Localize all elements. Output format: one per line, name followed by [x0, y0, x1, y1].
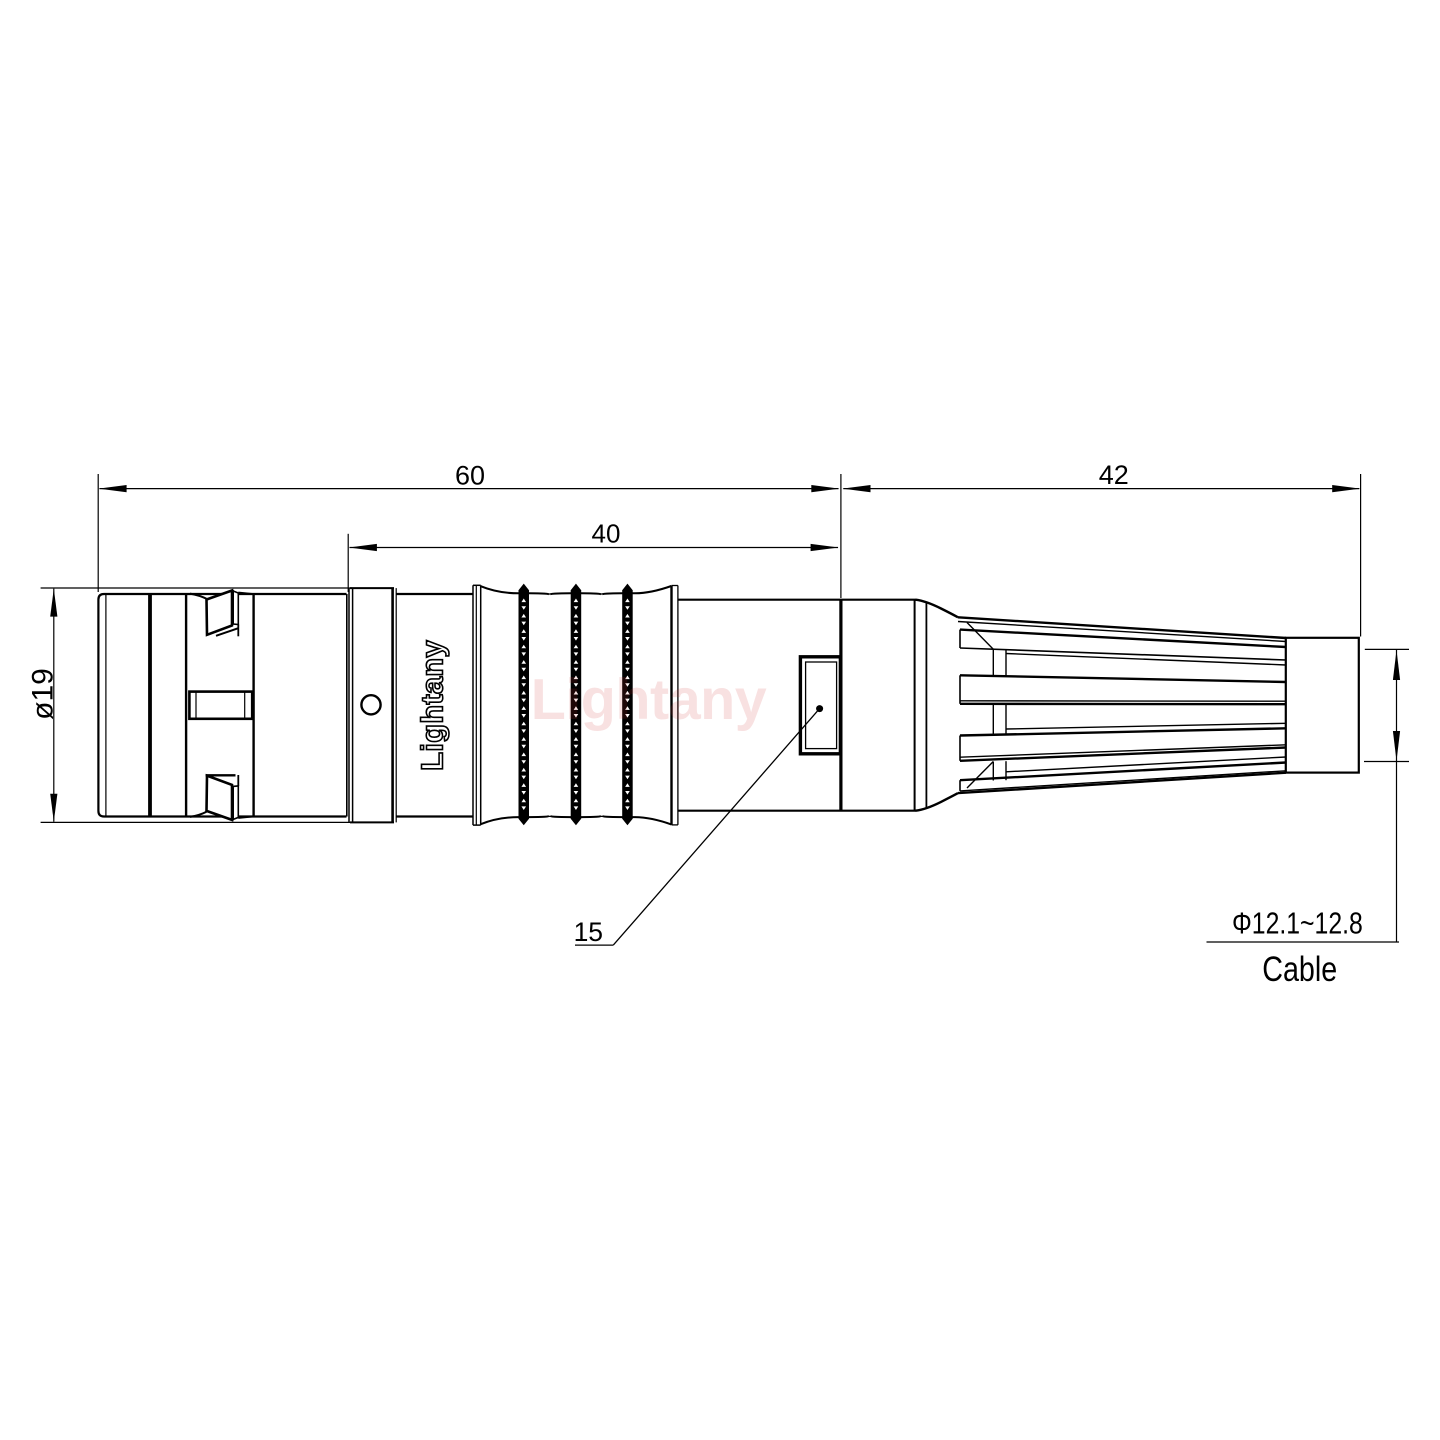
svg-text:15: 15 [574, 917, 603, 947]
svg-text:ø19: ø19 [27, 668, 60, 720]
svg-text:60: 60 [455, 461, 485, 491]
svg-text:Φ12.1~12.8: Φ12.1~12.8 [1232, 906, 1363, 940]
svg-text:Lightany: Lightany [415, 640, 450, 771]
svg-text:42: 42 [1099, 460, 1129, 490]
svg-text:Lightany: Lightany [531, 668, 767, 732]
svg-text:40: 40 [592, 519, 621, 549]
svg-text:Cable: Cable [1262, 949, 1337, 988]
